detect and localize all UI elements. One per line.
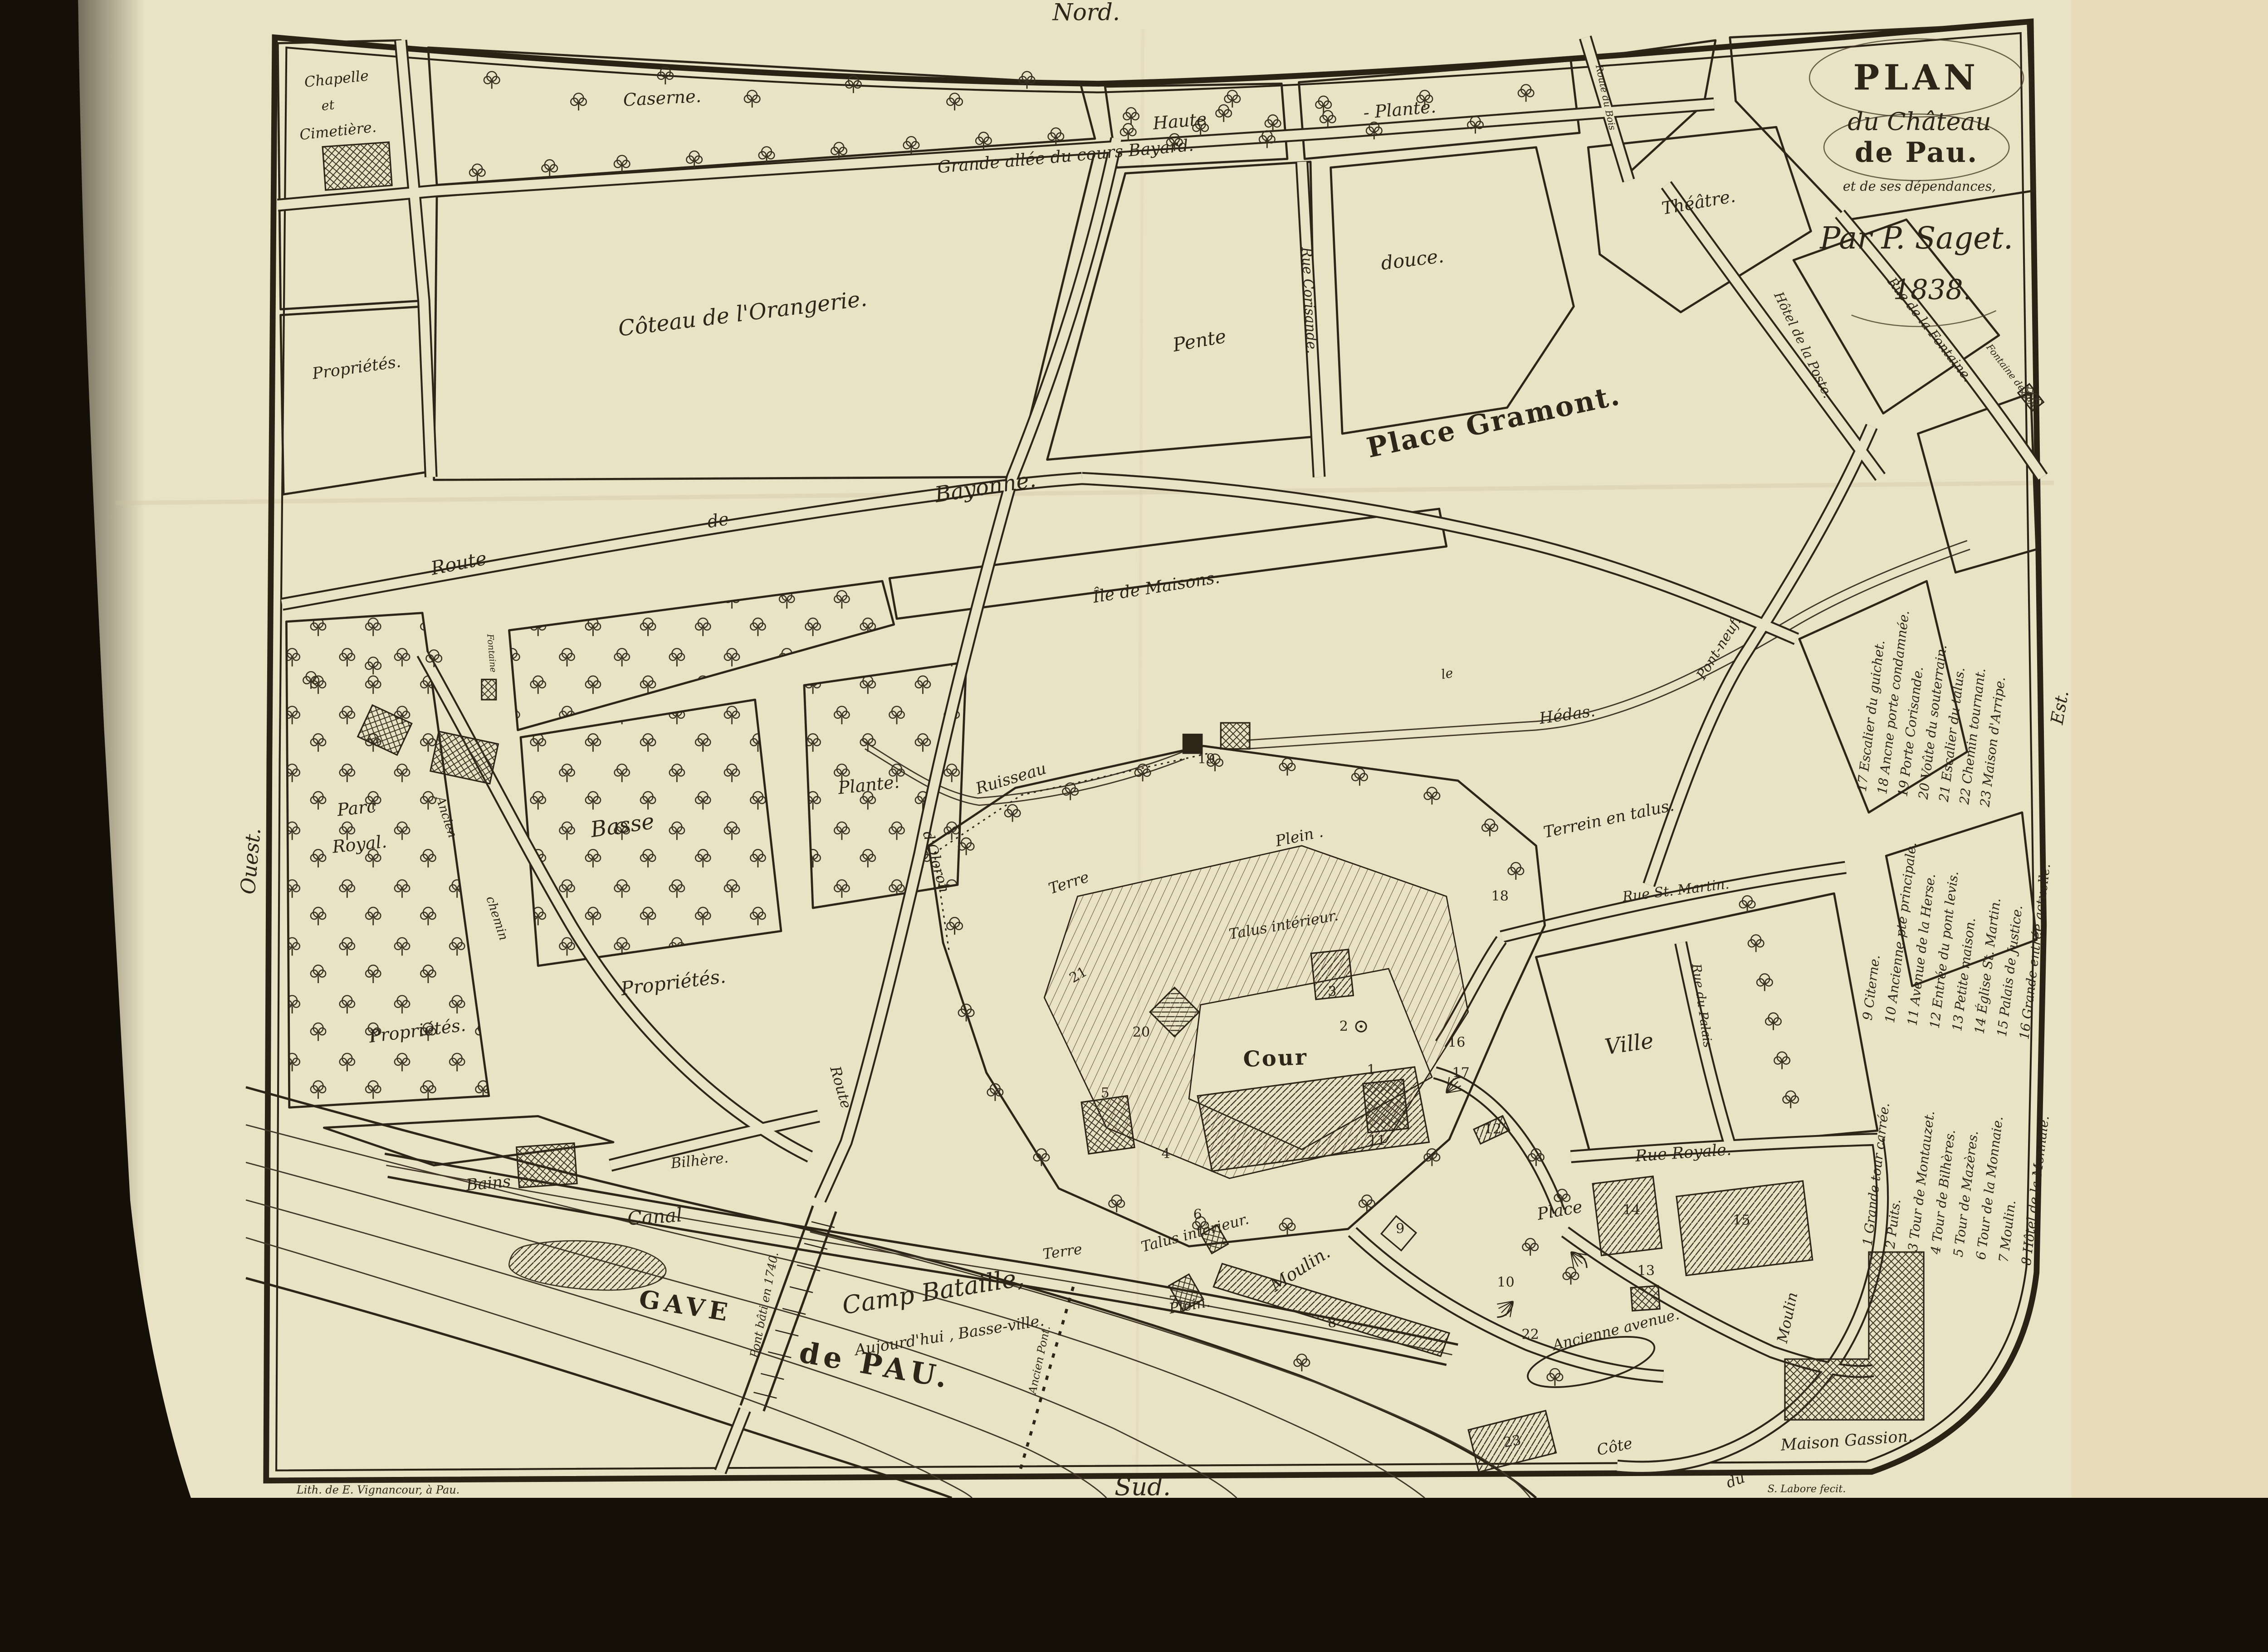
- title-de-pau: de Pau.: [1855, 136, 1979, 169]
- label-n22: 22: [1521, 1326, 1539, 1342]
- label-chapelle-2: et: [321, 97, 335, 114]
- bains-building: [517, 1143, 577, 1188]
- fontaine-basse-building: [482, 679, 496, 700]
- label-n7: 7: [1168, 1293, 1177, 1309]
- grande-tour-carree-1: [1363, 1079, 1408, 1132]
- label-n11: 11: [1368, 1133, 1386, 1149]
- photo-of-map: Nord. Sud. Ouest. Est.: [0, 0, 2268, 1498]
- label-n5: 5: [1101, 1085, 1110, 1101]
- label-le: le: [1440, 665, 1454, 682]
- label-n9: 9: [1396, 1221, 1404, 1237]
- title-plan: PLAN: [1853, 57, 1980, 98]
- title-du-chateau: du Château: [1848, 107, 1991, 136]
- label-n3: 3: [1328, 984, 1336, 1000]
- chapelle-building: [323, 142, 392, 190]
- label-n2: 2: [1339, 1018, 1348, 1034]
- label-n19: 19: [1198, 751, 1215, 767]
- petite-maison-13: [1631, 1286, 1660, 1311]
- label-n13: 13: [1637, 1263, 1655, 1279]
- label-n18: 18: [1491, 888, 1509, 904]
- label-n17: 17: [1452, 1065, 1470, 1081]
- label-n12: 12: [1484, 1121, 1502, 1137]
- label-n1: 1: [1367, 1062, 1375, 1078]
- label-canal: Canal: [626, 1204, 683, 1229]
- label-n15: 15: [1733, 1213, 1750, 1228]
- label-n20: 20: [1133, 1024, 1150, 1040]
- credit-engraver: S. Labore fecit.: [1768, 1483, 1846, 1495]
- label-n10: 10: [1497, 1275, 1515, 1291]
- credit-lithographer: Lith. de E. Vignancour, à Pau.: [296, 1484, 460, 1496]
- paper-yellowing: [2071, 0, 2268, 1498]
- label-n4: 4: [1162, 1146, 1170, 1162]
- label-caserne: Caserne.: [623, 86, 702, 111]
- culvert-19b: [1221, 723, 1250, 749]
- paper-edge-shadow: [78, 0, 145, 1498]
- title-author: Par P. Saget.: [1819, 220, 2013, 256]
- label-cour: Cour: [1243, 1044, 1309, 1072]
- compass-north: Nord.: [1051, 0, 1120, 26]
- tour-mazeres-5: [1081, 1096, 1134, 1154]
- label-n23: 23: [1502, 1432, 1522, 1451]
- label-route-bayonne-2: de: [706, 509, 730, 532]
- label-n16: 16: [1448, 1034, 1466, 1050]
- label-n8: 8: [1328, 1315, 1336, 1331]
- culvert-19a: [1183, 735, 1202, 753]
- map-canvas: Nord. Sud. Ouest. Est.: [0, 0, 2268, 1498]
- label-n14: 14: [1623, 1202, 1641, 1218]
- title-dependances: et de ses dépendances,: [1843, 179, 1996, 194]
- label-bains: Bains: [465, 1172, 512, 1195]
- compass-south: Sud.: [1114, 1472, 1171, 1498]
- label-n6: 6: [1193, 1207, 1202, 1223]
- label-parc-royal-1: Parc: [336, 796, 377, 821]
- puits-well-dot: [1359, 1025, 1362, 1028]
